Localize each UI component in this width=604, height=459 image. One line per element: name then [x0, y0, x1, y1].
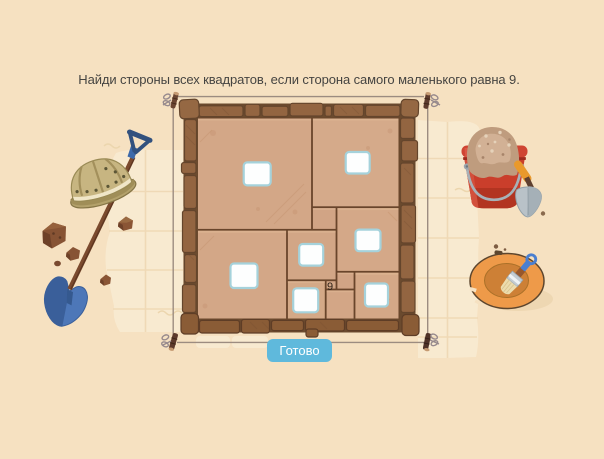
svg-text:9: 9 — [327, 281, 333, 293]
